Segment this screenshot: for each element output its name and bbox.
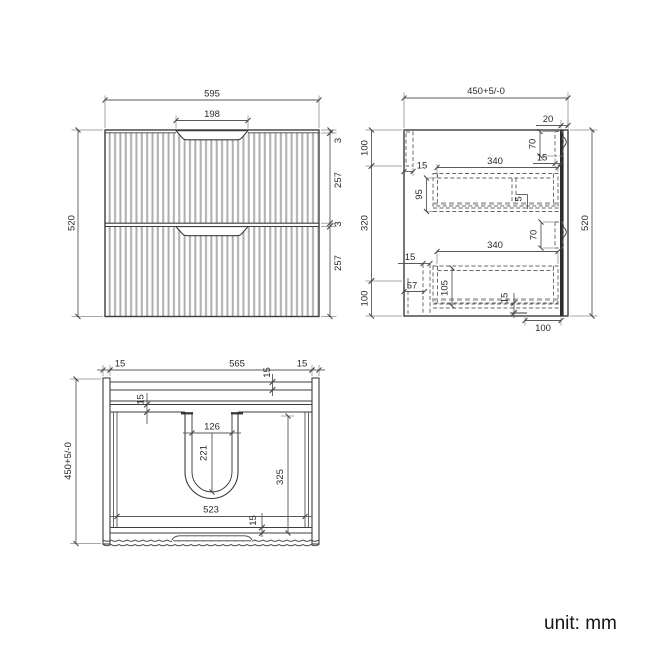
dim-label-drawer1-height: 257 (333, 172, 344, 188)
dim-label-back-rail: 15 (262, 367, 273, 378)
fluted-drawer-face-bottom (106, 227, 318, 317)
dim-label-top-rail: 15 (417, 161, 428, 172)
dim-label-front-height: 520 (67, 215, 78, 231)
dim-label-interior-width: 523 (203, 505, 219, 516)
front-top-rail-hidden (406, 132, 413, 166)
dim-label-drawer1-depth: 340 (487, 156, 503, 167)
dim-label-bottom-panel: 15 (500, 293, 511, 304)
dim-label-front-width: 595 (204, 89, 220, 100)
dim-label-base-clear: 100 (535, 323, 551, 334)
dim-label-drawer2-height: 105 (440, 280, 451, 296)
dim-label-bottom-rail: 15 (248, 515, 259, 526)
side-view: 450+5/-0 20 100 320 100 520 70 (360, 86, 598, 334)
dim-label-bracket-top: 70 (528, 139, 539, 150)
technical-drawing-page: 595 198 520 3 257 3 257 (0, 0, 650, 650)
dim-label-drawer1-height: 95 (414, 189, 425, 200)
front-view: 595 198 520 3 257 3 257 (67, 89, 345, 317)
dim-label-top-gap: 3 (333, 138, 344, 143)
dim-label-mid-section: 320 (360, 215, 371, 231)
dim-label-interior-depth: 325 (275, 469, 286, 485)
dim-label-mid-gap: 3 (333, 221, 344, 226)
dim-label-bracket-mid: 70 (529, 230, 540, 241)
dim-label-opening-width: 565 (229, 359, 245, 370)
dim-label-front-rail: 15 (136, 394, 147, 405)
plan-view-dimensions: 15 565 15 15 15 450+5/-0 126 221 325 (63, 359, 325, 544)
side-panel-left (103, 378, 110, 544)
dim-label-drawer2-height: 257 (333, 255, 344, 271)
dim-label-bottom-section: 100 (360, 291, 371, 307)
dim-label-cutout-width: 126 (204, 422, 220, 433)
dim-label-plan-depth: 450+5/-0 (63, 442, 74, 480)
vanity-technical-drawing: 595 198 520 3 257 3 257 (0, 0, 650, 650)
dim-label-back-panel: 20 (543, 114, 554, 125)
dim-label-side-height: 520 (580, 215, 591, 231)
dim-label-top-section: 100 (360, 140, 371, 156)
plan-view: 15 565 15 15 15 450+5/-0 126 221 325 (63, 359, 325, 546)
fluted-front-edge-bottom (103, 545, 319, 546)
side-panel-right (312, 378, 319, 544)
dim-label-bracket-top-inset: 15 (537, 153, 548, 164)
unit-label: unit: mm (544, 613, 617, 634)
dim-label-side-right: 15 (297, 359, 308, 370)
dim-label-divider: 5 (514, 196, 525, 201)
dim-label-handle-cutout: 198 (204, 109, 220, 120)
fluted-drawer-face-top (106, 133, 318, 223)
drawer-top-hidden (433, 174, 561, 212)
dim-label-side-depth: 450+5/-0 (467, 86, 505, 97)
dim-label-front-inset: 15 (405, 252, 416, 263)
handle-recess-bottom-drawer (176, 227, 248, 236)
dim-label-side-left: 15 (115, 359, 126, 370)
dim-label-drawer2-depth: 340 (487, 240, 503, 251)
dim-label-toe-space: 57 (407, 281, 418, 292)
dim-label-cutout-depth: 221 (199, 445, 210, 461)
handle-recess-top-drawer (176, 131, 248, 140)
